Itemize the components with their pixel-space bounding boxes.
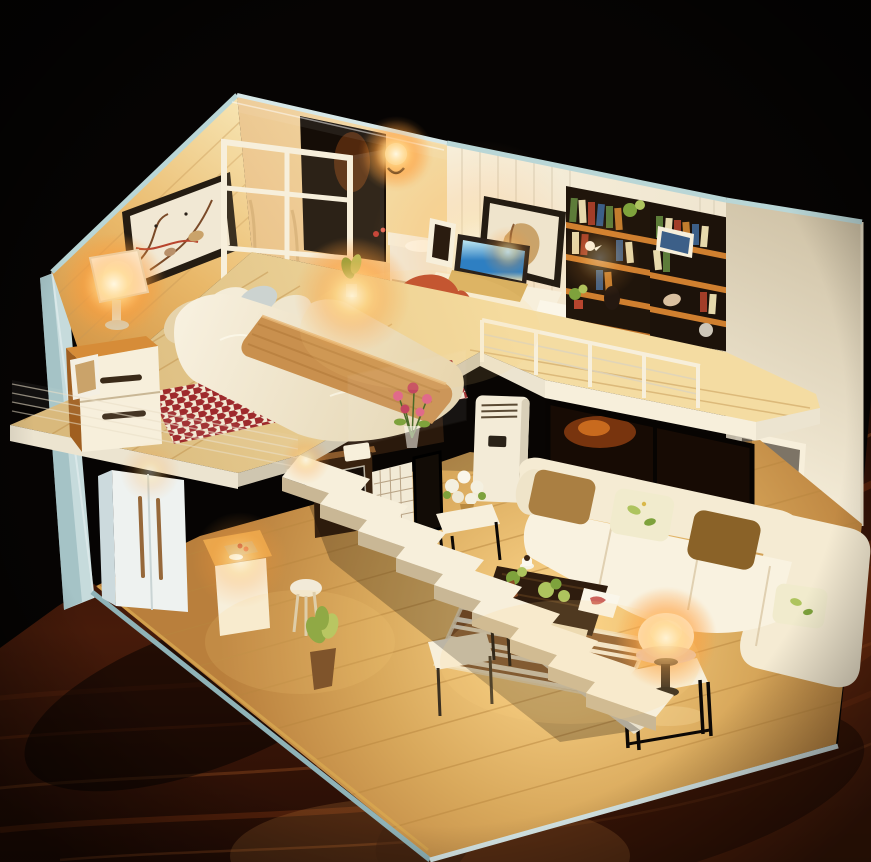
small-frame xyxy=(426,218,456,268)
dollhouse-photo xyxy=(0,0,871,862)
fridge xyxy=(98,470,188,612)
black-door xyxy=(414,452,442,534)
